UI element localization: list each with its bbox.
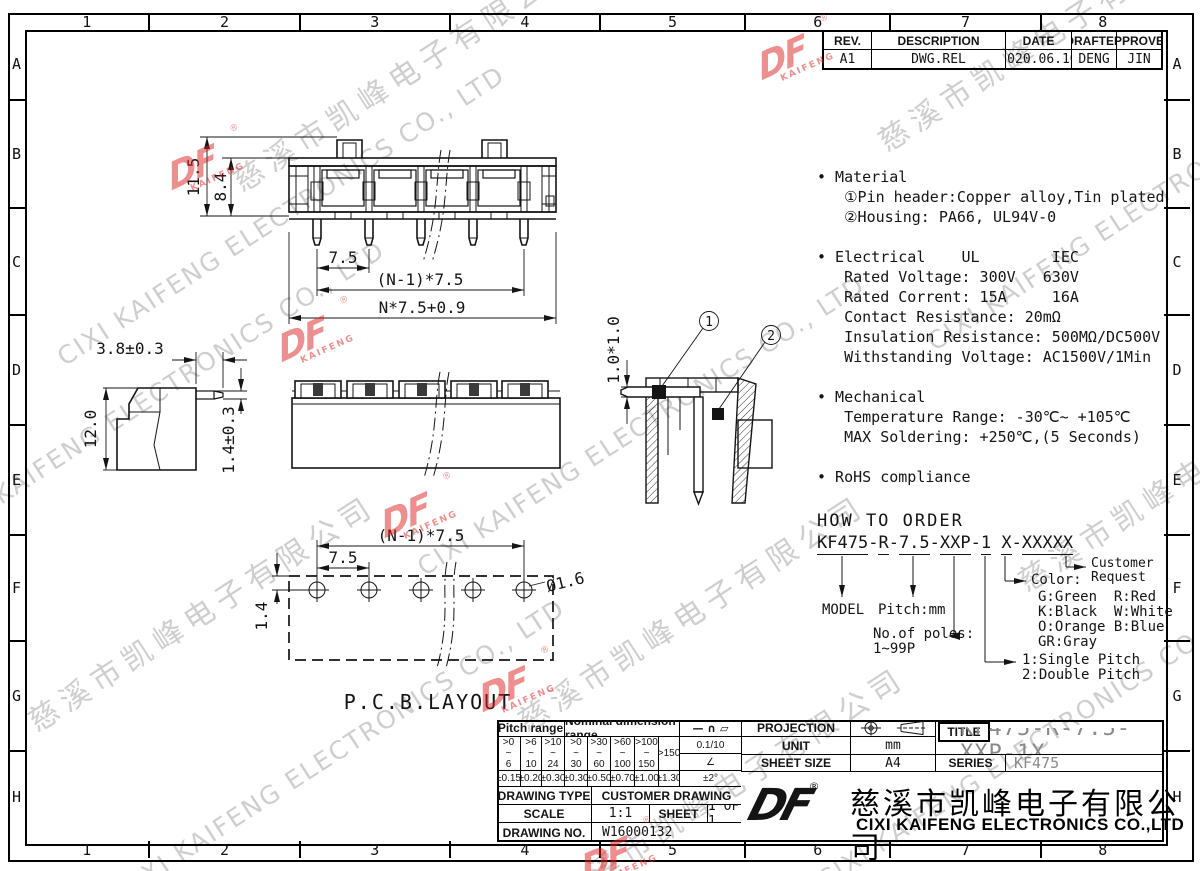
drawing-type-label: DRAWING TYPE bbox=[497, 787, 592, 805]
scale-value: 1:1 bbox=[592, 805, 650, 823]
tolerance-range-150: >150 bbox=[659, 737, 680, 771]
tolerance-angle-value: ±2° bbox=[680, 771, 741, 787]
tolerance-nominal-header: Nominal dimension range bbox=[565, 720, 680, 737]
code-dash: - bbox=[971, 533, 981, 553]
drawing-no-label: DRAWING NO. bbox=[497, 823, 592, 842]
pcb-dim-hole: Ø1.6 bbox=[544, 568, 586, 596]
pcb-layout-dimensions: (N-1)*7.5 7.5 1.4 Ø1.6 P.C.B.LAYOUT bbox=[252, 526, 586, 714]
series-value: KF475 bbox=[1006, 755, 1164, 772]
pcb-layout-caption: P.C.B.LAYOUT bbox=[344, 690, 513, 714]
pcb-dim-span: (N-1)*7.5 bbox=[378, 526, 465, 545]
company-name-en: CIXI KAIFENG ELECTRONICS CO.,LTD bbox=[856, 815, 1184, 835]
tolerance-value: ±0.50 bbox=[588, 771, 611, 787]
dim-pin-square: 1.0*1.0 bbox=[604, 316, 623, 383]
drawing-no-value: W16000132 bbox=[592, 823, 741, 842]
spec-notes: • Material ①Pin header:Copper alloy,Tin … bbox=[817, 167, 1165, 487]
sheet-label: SHEET bbox=[650, 805, 708, 823]
order-label-single-pitch: 1:Single Pitch bbox=[1022, 652, 1140, 668]
tolerance-range: >6 ~ 10 bbox=[521, 737, 542, 771]
front-view bbox=[289, 140, 556, 262]
order-color-row: GR:Gray bbox=[1038, 634, 1097, 650]
drawing-type-value: CUSTOMER DRAWING bbox=[592, 787, 741, 805]
title-value: KF475-R-7.5-XXP-1X bbox=[960, 728, 1164, 754]
tolerance-value: ±0.70 bbox=[611, 771, 635, 787]
dim-total-width: N*7.5+0.9 bbox=[379, 298, 466, 317]
sheet-size-label: SHEET SIZE bbox=[741, 755, 851, 772]
sheet-value: 1 OF 1 bbox=[708, 805, 741, 823]
callout-2-housing: 2 bbox=[767, 329, 775, 344]
projection-symbol bbox=[851, 720, 936, 737]
tolerance-range: >100 ~ 150 bbox=[635, 737, 659, 771]
pins bbox=[313, 219, 528, 245]
order-code: KF475-R-7.5-XXP-1 X-XXXXX bbox=[817, 533, 1073, 553]
how-to-order-title: HOW TO ORDER bbox=[817, 511, 964, 531]
order-color-row: G:Green R:Red bbox=[1038, 589, 1156, 605]
tolerance-range: >0 ~ 6 bbox=[497, 737, 521, 771]
callout-1-pin-header: 1 bbox=[705, 315, 713, 330]
code-model: KF475 bbox=[817, 533, 868, 555]
code-pitch: 7.5 bbox=[899, 533, 930, 555]
order-label-customer-1: Customer bbox=[1091, 556, 1154, 571]
sheet-size-value: A4 bbox=[851, 755, 936, 772]
order-label-customer-2: Request bbox=[1091, 570, 1146, 585]
code-dash: - bbox=[1012, 533, 1022, 553]
company-logo: DF® bbox=[750, 780, 820, 831]
dim-body-height: 8.4 bbox=[211, 173, 230, 202]
code-type: R bbox=[878, 533, 888, 555]
tolerance-value: ±0.30 bbox=[565, 771, 588, 787]
tolerance-value: ±0.15 bbox=[497, 771, 521, 787]
pcb-dim-pitch: 7.5 bbox=[329, 548, 358, 567]
tolerance-range: >60 ~ 100 bbox=[611, 737, 635, 771]
order-label-pitch: Pitch:mm bbox=[878, 602, 945, 618]
code-poles: XXP bbox=[940, 533, 971, 555]
order-label-poles-range: 1~99P bbox=[873, 641, 915, 657]
tolerance-value: ±0.30 bbox=[542, 771, 565, 787]
tolerance-flatness: 0.1/10 bbox=[680, 737, 741, 754]
order-label-model: MODEL bbox=[822, 602, 864, 618]
tolerance-pitch-header: Pitch range bbox=[497, 720, 565, 737]
projection-label: PROJECTION bbox=[741, 720, 851, 737]
unit-value: mm bbox=[851, 737, 936, 755]
pcb-layout-view bbox=[289, 562, 553, 668]
unit-label: UNIT bbox=[741, 737, 851, 755]
order-label-poles: No.of poles: bbox=[873, 626, 974, 642]
scale-label: SCALE bbox=[497, 805, 592, 823]
order-color-row: K:Black W:White bbox=[1038, 604, 1173, 620]
tolerance-range: >30 ~ 60 bbox=[588, 737, 611, 771]
side-view bbox=[117, 388, 223, 470]
code-color: X bbox=[1001, 533, 1011, 555]
dim-total-height: 11.5 bbox=[184, 158, 203, 197]
code-dash: - bbox=[868, 533, 878, 553]
dim-height: 12.0 bbox=[81, 410, 100, 449]
code-dash: - bbox=[930, 533, 940, 553]
drawing-sheet: CIXI KAIFENG ELECTRONICS CO., LTD 慈溪市凯峰电… bbox=[0, 0, 1200, 871]
tolerance-angle-symbol: ∠ bbox=[680, 754, 741, 771]
tolerance-value-150: ±1.30 bbox=[659, 771, 680, 787]
order-label-color: Color: bbox=[1031, 572, 1082, 588]
code-customer: XXXXX bbox=[1022, 533, 1073, 555]
first-angle-projection-icon bbox=[853, 720, 933, 736]
pcb-dim-edge: 1.4 bbox=[252, 602, 271, 631]
dim-pitch: 7.5 bbox=[329, 248, 358, 267]
order-color-row: O:Orange B:Blue bbox=[1038, 619, 1164, 635]
tolerance-range: >10 ~ 24 bbox=[542, 737, 565, 771]
tolerance-value: ±1.00 bbox=[635, 771, 659, 787]
side-view-dimensions: 3.8±0.3 12.0 1.4±0.3 bbox=[81, 339, 247, 474]
section-view bbox=[621, 378, 772, 504]
rear-view bbox=[292, 372, 560, 478]
dim-pin-offset: 1.4±0.3 bbox=[219, 406, 238, 473]
order-label-double-pitch: 2:Double Pitch bbox=[1022, 667, 1140, 683]
dim-depth: 3.8±0.3 bbox=[96, 339, 163, 358]
tolerance-symbols-header: — ∩ ▱ bbox=[680, 720, 741, 737]
dim-span: (N-1)*7.5 bbox=[377, 270, 464, 289]
code-pitch-type: 1 bbox=[981, 533, 991, 555]
df-logo-icon: DF bbox=[743, 780, 816, 831]
front-view-dimensions: 11.5 8.4 7.5 (N-1)*7.5 N*7.5+0.9 bbox=[184, 137, 556, 324]
code-dash: - bbox=[889, 533, 899, 553]
tolerance-value: ±0.20 bbox=[521, 771, 542, 787]
series-label: SERIES bbox=[936, 755, 1006, 772]
code-space bbox=[991, 533, 1001, 553]
tolerance-range: >0 ~ 30 bbox=[565, 737, 588, 771]
